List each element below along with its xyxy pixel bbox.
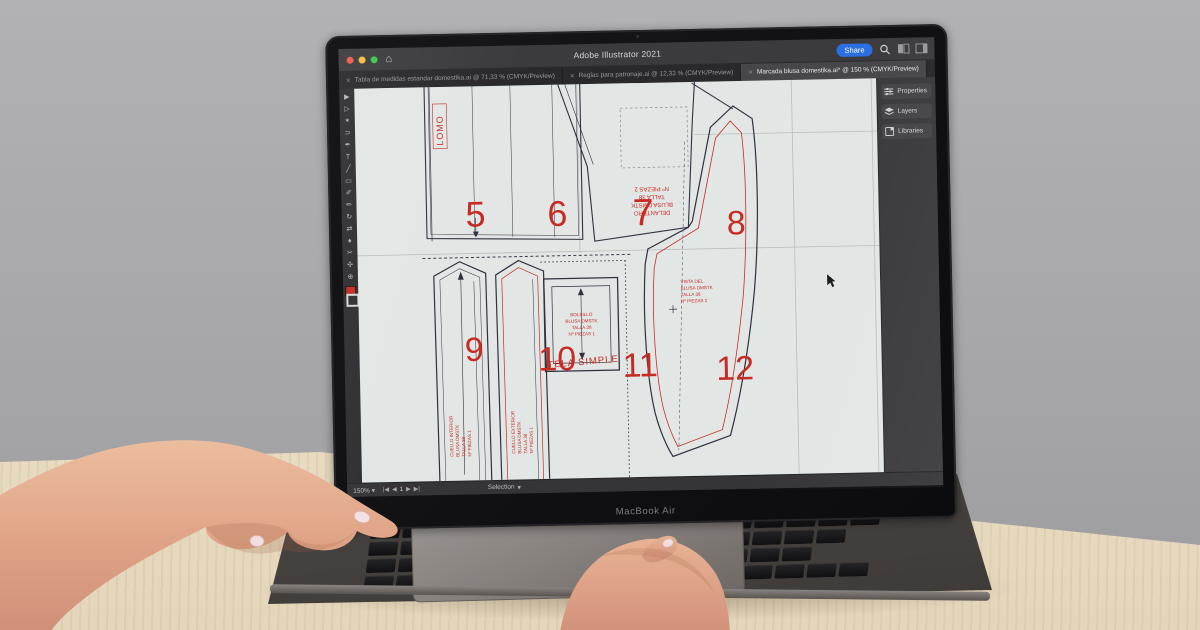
piece-number-11: 11 — [622, 346, 658, 385]
piece12-label: VISTA DEL. BLUSA DMSTK TALLA 38 Nº PIEZA… — [680, 279, 713, 304]
svg-text:TALLA 38: TALLA 38 — [523, 433, 528, 453]
svg-text:Nº PIEZAS 2: Nº PIEZAS 2 — [681, 298, 708, 304]
right-panel-dock: Properties Layers Libraries — [876, 77, 943, 472]
paintbrush-tool-icon[interactable]: ✐ — [342, 188, 355, 199]
window-controls — [347, 56, 378, 64]
svg-text:Nº PIEZAS 1: Nº PIEZAS 1 — [568, 331, 595, 337]
keyboard-key — [781, 547, 812, 562]
titlebar-actions: Share — [836, 42, 926, 57]
prev-artboard-button[interactable]: ◀ — [392, 486, 397, 493]
pen-tool-icon[interactable]: ✒ — [341, 140, 354, 151]
mouse-cursor — [827, 274, 835, 287]
svg-text:Nº PIEZAS 1: Nº PIEZAS 1 — [529, 427, 535, 454]
piece-number-9: 9 — [464, 331, 484, 369]
piece-number-6: 6 — [547, 194, 568, 234]
svg-text:BLUSA DMSTK: BLUSA DMSTK — [565, 318, 597, 324]
keyboard-key — [774, 564, 805, 579]
piece-number-5: 5 — [465, 194, 486, 234]
fold-dashed-line — [422, 254, 632, 258]
lasso-tool-icon[interactable]: ⊃ — [341, 128, 354, 139]
illustrator-window: ⌂ Adobe Illustrator 2021 Share — [338, 37, 943, 497]
layers-icon — [885, 107, 894, 116]
chevron-down-icon: ▾ — [372, 487, 375, 494]
dashed-guide-rect[interactable] — [620, 107, 688, 168]
rectangle-tool-icon[interactable]: ▭ — [342, 176, 355, 187]
svg-text:VISTA DEL.: VISTA DEL. — [680, 279, 704, 284]
artboard-navigation: |◀ ◀ 1 ▶ ▶| — [383, 485, 420, 493]
svg-text:BLUSA DMSTK: BLUSA DMSTK — [681, 285, 713, 291]
chevron-down-icon: ▾ — [518, 483, 521, 491]
lomo-label[interactable]: LOMO — [432, 104, 447, 149]
type-tool-icon[interactable]: T — [341, 152, 354, 163]
svg-text:BOLSILLO: BOLSILLO — [570, 312, 593, 317]
photo-scene: ⌂ Adobe Illustrator 2021 Share — [0, 0, 1200, 630]
tab-close-icon[interactable]: × — [748, 68, 753, 77]
hand-tool-icon[interactable]: ✣ — [344, 260, 357, 271]
tab-label: Reglas para patronaje.ai @ 12,33 % (CMYK… — [578, 69, 733, 79]
direct-selection-tool-icon[interactable]: ▷ — [340, 104, 353, 115]
zoom-level-select[interactable]: 150% ▾ — [353, 486, 375, 494]
tab-label: Tabla de medidas estandar domestika.ai @… — [355, 73, 555, 84]
panel-label: Libraries — [898, 127, 923, 134]
tab-close-icon[interactable]: × — [570, 71, 575, 80]
next-artboard-button[interactable]: ▶ — [406, 486, 411, 493]
keyboard-key — [368, 541, 399, 556]
scale-tool-icon[interactable]: ⇄ — [343, 224, 356, 235]
keyboard-key — [784, 530, 815, 545]
home-icon[interactable]: ⌂ — [385, 53, 392, 64]
keyboard-key — [366, 558, 397, 573]
search-icon[interactable] — [879, 43, 890, 54]
properties-panel-button[interactable]: Properties — [881, 83, 931, 99]
piece10-label: CUELLO EXTERIOR BLUSA DMSTK TALLA 38 Nº … — [510, 410, 534, 454]
first-artboard-button[interactable]: |◀ — [383, 486, 389, 493]
arrange-documents-icon[interactable] — [897, 43, 908, 54]
registration-cross — [669, 305, 677, 313]
minimize-window-icon[interactable] — [359, 56, 366, 63]
window-title: Adobe Illustrator 2021 — [398, 45, 836, 64]
laptop-screen: ⌂ Adobe Illustrator 2021 Share — [325, 24, 957, 530]
piece-number-7: 7 — [632, 192, 654, 234]
line-tool-icon[interactable]: ╱ — [342, 164, 355, 175]
pocket-label: BOLSILLO BLUSA DMSTK TALLA 38 Nº PIEZAS … — [565, 312, 598, 337]
workspace-switcher-icon[interactable] — [915, 43, 926, 54]
svg-text:LOMO: LOMO — [435, 115, 446, 146]
piece9-label: CUELLO INTERIOR BLUSA DMSTK TALLA 38 Nº … — [449, 414, 473, 457]
selection-tool-icon[interactable]: ▶ — [340, 92, 353, 103]
artboard-number[interactable]: 1 — [400, 486, 403, 492]
eyedropper-tool-icon[interactable]: ♦ — [343, 236, 356, 247]
svg-text:CUELLO EXTERIOR: CUELLO EXTERIOR — [510, 410, 516, 454]
libraries-panel-button[interactable]: Libraries — [882, 123, 932, 139]
tab-close-icon[interactable]: × — [346, 76, 351, 85]
keyboard-key — [838, 562, 869, 577]
libraries-icon — [885, 127, 894, 136]
pattern-artwork: LOMO 5 6 — [354, 78, 884, 482]
keyboard-key — [749, 548, 780, 563]
pencil-tool-icon[interactable]: ✏ — [342, 200, 355, 211]
tab-label: Marcada blusa domestika.ai* @ 150 % (CMY… — [757, 65, 919, 75]
svg-text:TALLA 38: TALLA 38 — [681, 292, 701, 297]
keyboard-key — [806, 563, 837, 578]
svg-text:BLUSA DMSTK: BLUSA DMSTK — [455, 425, 461, 457]
close-window-icon[interactable] — [347, 56, 354, 63]
properties-icon — [884, 87, 893, 96]
panel-label: Properties — [897, 87, 927, 95]
panel-label: Layers — [898, 107, 918, 114]
svg-text:TALLA 38: TALLA 38 — [461, 436, 466, 456]
scissors-tool-icon[interactable]: ✂ — [343, 248, 356, 259]
layers-panel-button[interactable]: Layers — [882, 103, 932, 119]
magic-wand-tool-icon[interactable]: ✶ — [341, 116, 354, 127]
last-artboard-button[interactable]: ▶| — [414, 485, 420, 492]
piece-number-12: 12 — [716, 349, 755, 388]
keyboard-key — [816, 529, 847, 544]
webcam-dot — [636, 35, 639, 38]
zoom-tool-icon[interactable]: ⊕ — [344, 272, 357, 283]
piece-number-8: 8 — [726, 204, 746, 242]
maximize-window-icon[interactable] — [371, 56, 378, 63]
svg-text:BLUSA DMSTK: BLUSA DMSTK — [517, 422, 523, 454]
rotate-tool-icon[interactable]: ↻ — [343, 212, 356, 223]
keyboard-key — [742, 565, 773, 580]
status-tool-hint: Selection ▾ — [488, 483, 521, 492]
keyboard-key — [752, 530, 783, 545]
svg-text:Nº PIEZAS 1: Nº PIEZAS 1 — [467, 430, 473, 457]
svg-text:CUELLO INTERIOR: CUELLO INTERIOR — [449, 415, 455, 457]
share-button[interactable]: Share — [836, 43, 872, 57]
svg-text:TALLA 38: TALLA 38 — [572, 325, 592, 330]
artboard-canvas[interactable]: LOMO 5 6 — [354, 78, 884, 482]
